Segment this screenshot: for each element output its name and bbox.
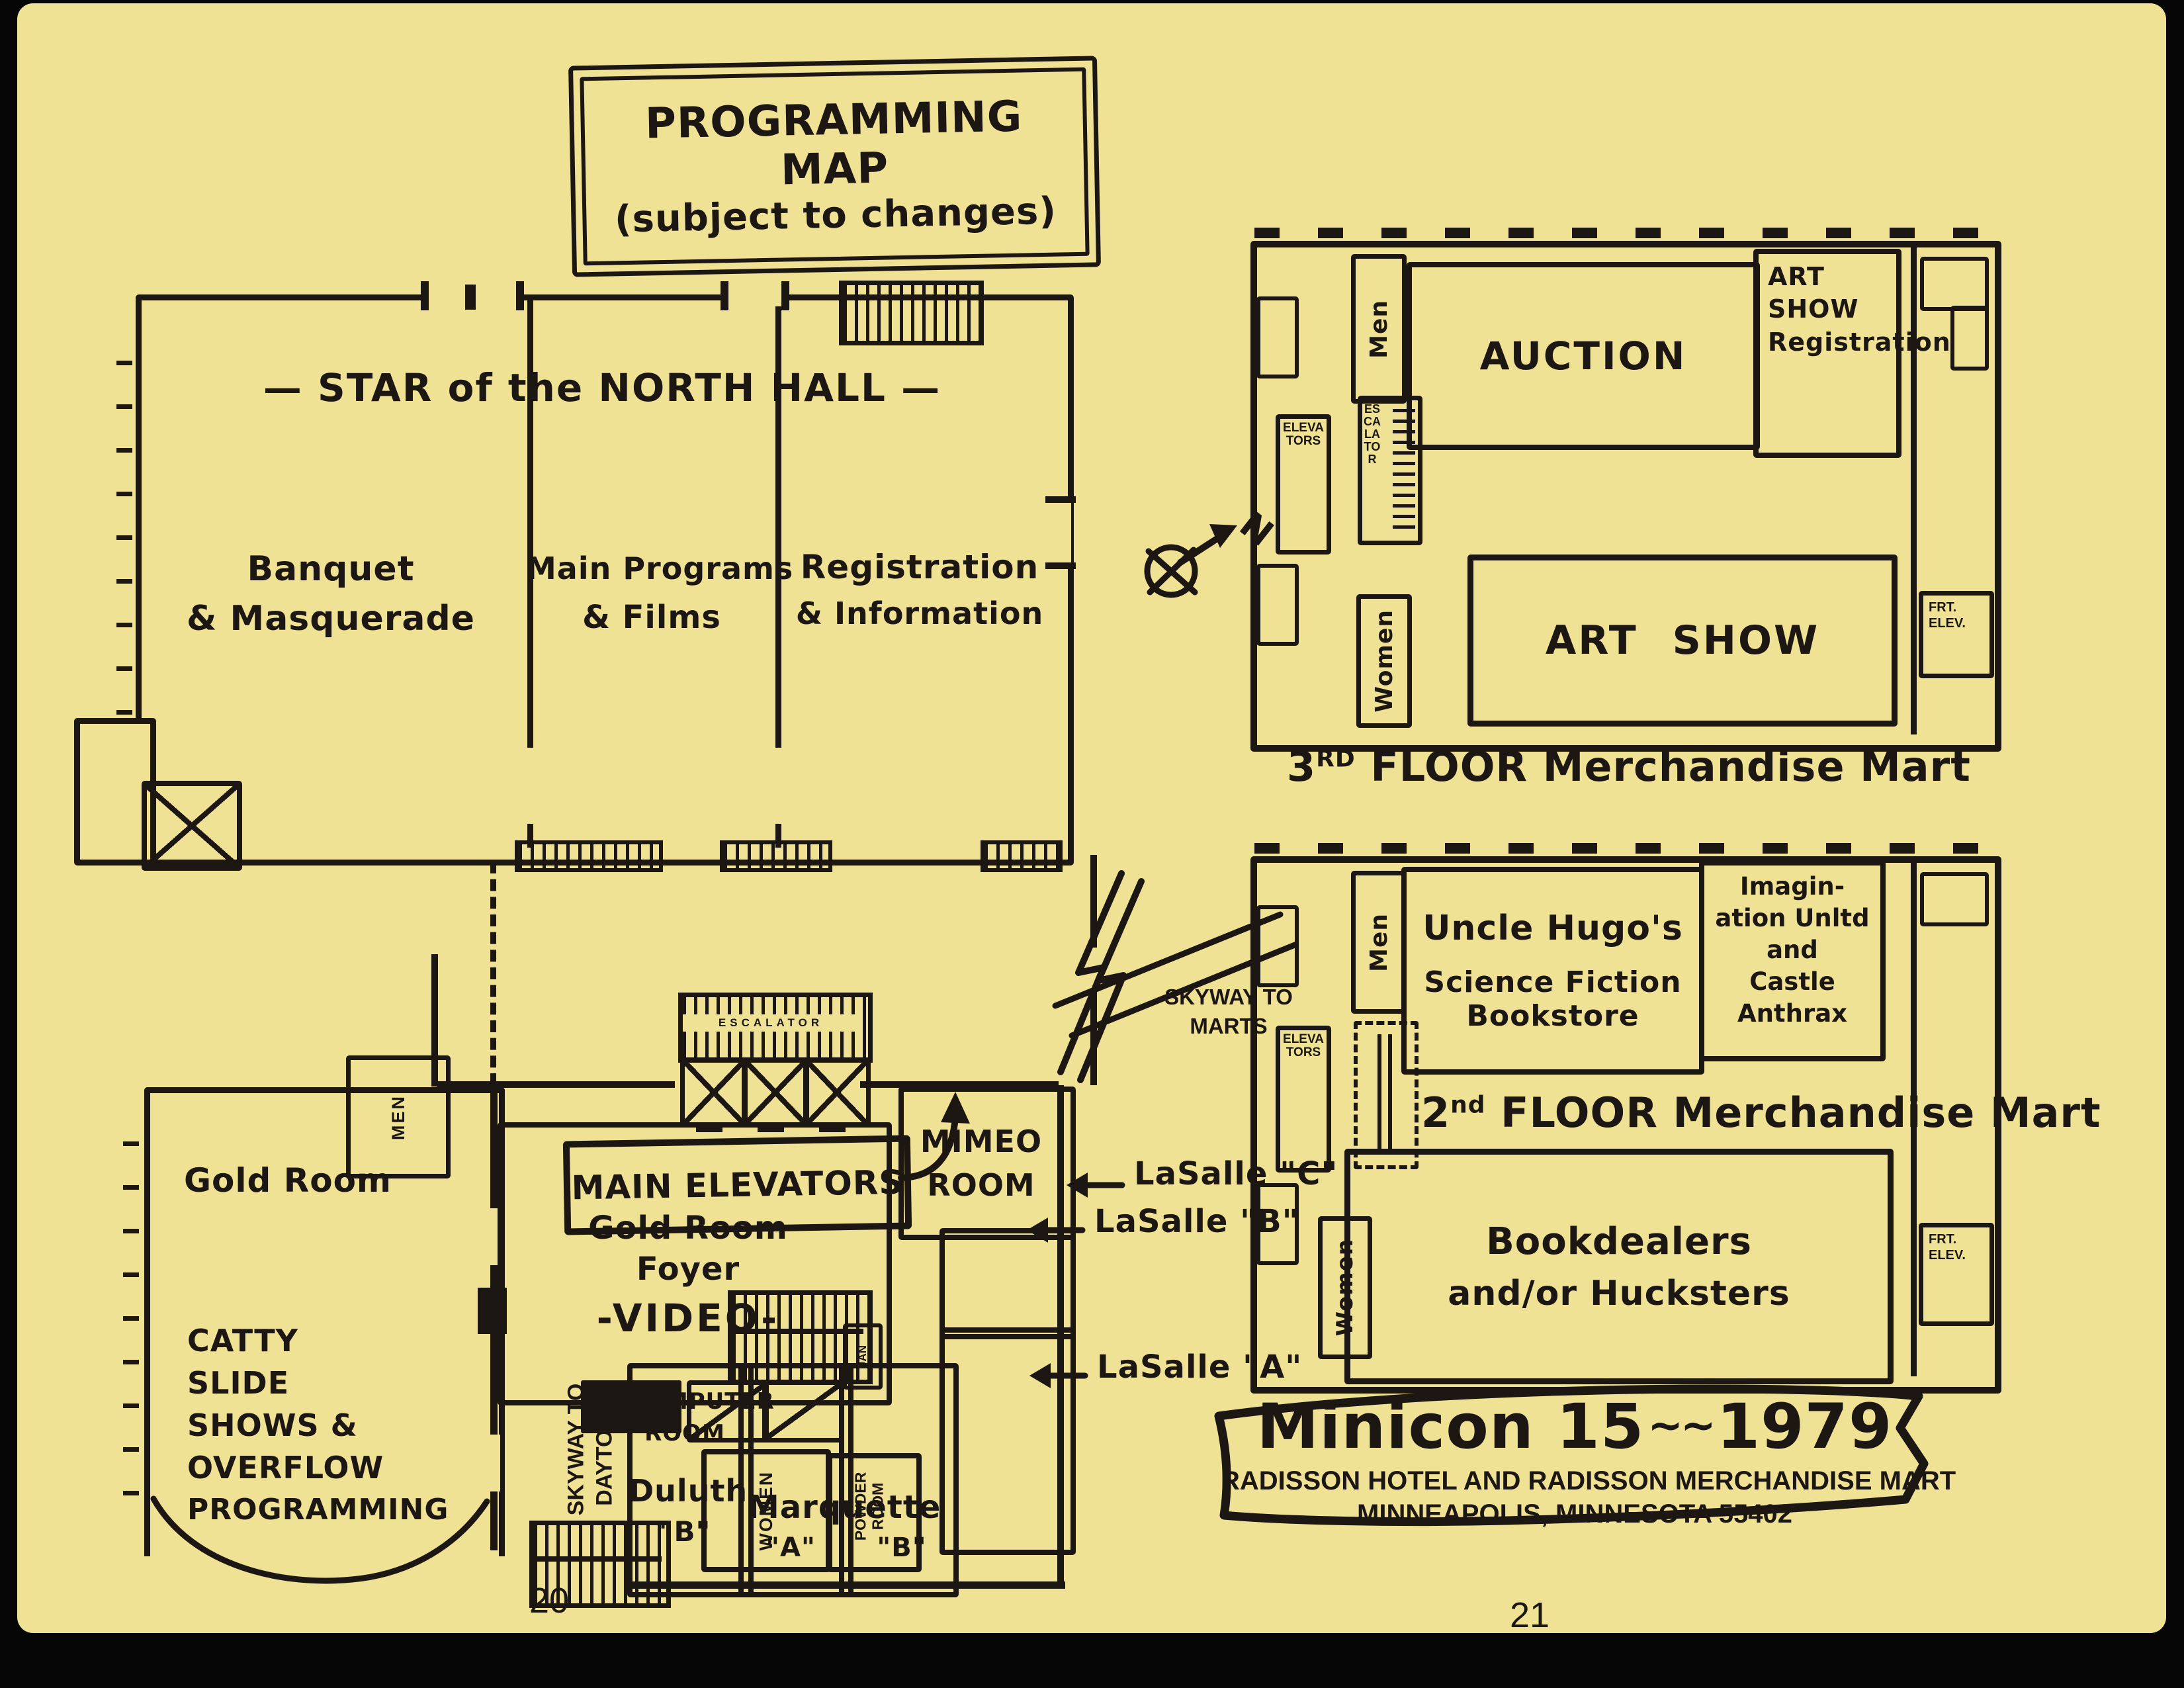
door-jamb xyxy=(516,281,524,310)
hugo-label-line2: Science Fiction xyxy=(1424,965,1681,999)
imag-label-line2: ation Unltd xyxy=(1704,903,1880,934)
catty-label-line2: SLIDE xyxy=(187,1362,449,1405)
imag-label-line3: and xyxy=(1704,934,1880,966)
marquette-b-label: "B" xyxy=(872,1533,932,1563)
balcony-rail xyxy=(981,840,1063,872)
registration-label-line2: & Information xyxy=(781,596,1059,631)
elevator-car xyxy=(803,1057,871,1128)
floor3-womens-label: Women xyxy=(1371,609,1398,713)
freight-elevator-box xyxy=(142,781,242,871)
skyway-daytons-label: SKYWAY TO DAYTON'S xyxy=(562,1370,619,1529)
balcony-rail xyxy=(720,840,832,872)
catty-label-line1: CATTY xyxy=(187,1320,449,1362)
floor3-right-wall xyxy=(1911,247,1917,734)
gold-room-label: Gold Room xyxy=(184,1161,392,1200)
corridor-dashed-wall xyxy=(490,862,496,1085)
stairwell xyxy=(839,281,984,345)
floor2-small-room xyxy=(1920,872,1989,926)
lasalle-a-label: LaSalle "A" xyxy=(1097,1349,1302,1386)
escalator-block-label: ESCALATOR xyxy=(683,1014,859,1032)
main-programs-label-line2: & Films xyxy=(526,599,777,636)
auction-label: AUCTION xyxy=(1480,333,1687,378)
door-jamb xyxy=(721,281,728,310)
floor2-caption: 2nd FLOOR Merchandise Mart xyxy=(1421,1088,2089,1137)
floor2-elevators-label: ELEVATORS xyxy=(1280,1033,1327,1059)
floor3-left-alcove xyxy=(1256,296,1299,378)
imagination-castle-room: Imagin- ation Unltd and Castle Anthrax xyxy=(1699,860,1886,1061)
door-gap xyxy=(724,289,784,306)
floor2-escalator xyxy=(1354,1021,1419,1169)
bookdealers-label-line2: and/or Hucksters xyxy=(1448,1274,1790,1313)
break-bolt-icon xyxy=(1080,881,1141,1080)
imag-label-line4: Castle xyxy=(1704,966,1880,998)
floor3-small-room xyxy=(1950,306,1989,371)
north-hall-window-ticks xyxy=(116,357,132,715)
artreg-label-line3: Registration xyxy=(1768,326,1951,359)
door-gap xyxy=(768,748,789,824)
foyer-label-line1: Gold Room xyxy=(529,1210,847,1247)
mimeo-label-line1: MIMEO xyxy=(900,1124,1063,1159)
floor2-right-wall xyxy=(1911,863,1917,1376)
door-gap xyxy=(488,1435,500,1491)
catty-label-line3: SHOWS & xyxy=(187,1405,449,1447)
lasalle-b-label: LaSalle "B" xyxy=(1094,1203,1299,1240)
floor3-frt-label-line2: ELEV. xyxy=(1929,615,1966,631)
floor2-frt-label-line1: FRT. xyxy=(1929,1231,1966,1247)
page-number-left: 20 xyxy=(529,1580,569,1621)
lasalle-a-arrow-icon xyxy=(1027,1360,1090,1391)
door-jamb xyxy=(421,281,429,310)
banquet-room-label-line2: & Masquerade xyxy=(142,599,519,639)
art-show-label: ART SHOW xyxy=(1546,617,1819,664)
catty-label-line4: OVERFLOW xyxy=(187,1447,449,1489)
banner-title-line: Minicon 15 ~~ 1979 xyxy=(1227,1391,1922,1463)
lasalle-c-arrow-icon xyxy=(1064,1170,1127,1200)
banner-squiggle: ~~ xyxy=(1647,1401,1713,1450)
floor2-womens-label: Women xyxy=(1332,1239,1358,1336)
door-gap xyxy=(520,748,541,824)
imag-label-line5: Anthrax xyxy=(1704,998,1880,1030)
floor2-womens-room: Women xyxy=(1318,1216,1372,1359)
floor2-freight-elevator: FRT. ELEV. xyxy=(1919,1223,1994,1326)
main-programs-label-line1: Main Programs xyxy=(526,551,777,586)
balcony-rail xyxy=(515,840,663,872)
duluth-label: Duluth xyxy=(629,1473,741,1509)
art-show-room: ART SHOW xyxy=(1467,555,1898,727)
floor3-escalator-label: ESCALATOR xyxy=(1364,403,1381,465)
door-post xyxy=(465,285,476,310)
video-label: -VIDEO- xyxy=(529,1296,847,1341)
marquette-label: Marquette xyxy=(748,1489,939,1526)
floor3-elevator-shaft: ELEVATORS xyxy=(1276,414,1331,555)
banner-title: Minicon 15 xyxy=(1257,1391,1645,1463)
title-box-inner-border: PROGRAMMING MAP (subject to changes) xyxy=(580,67,1089,266)
escalator-belt-line xyxy=(1388,1034,1392,1155)
floor2-caption-ordinal: nd xyxy=(1450,1091,1485,1118)
north-hall-heading: — STAR of the NORTH HALL — xyxy=(172,365,1032,410)
floor2-frt-label-line2: ELEV. xyxy=(1929,1247,1966,1263)
bookdealers-room: Bookdealers and/or Hucksters xyxy=(1344,1149,1894,1384)
title-box: PROGRAMMING MAP (subject to changes) xyxy=(568,56,1101,277)
floor3-womens-room: Women xyxy=(1356,594,1412,728)
floor3-caption-number: 3 xyxy=(1287,742,1316,791)
escalator-belt-line xyxy=(1377,1034,1381,1155)
computer-room-label-line1: COMPUTER xyxy=(629,1388,741,1415)
floor3-mens-room: Men xyxy=(1351,254,1407,404)
computer-room-label-line2: ROOM xyxy=(629,1420,741,1446)
door-jamb xyxy=(781,281,789,310)
elevator-car xyxy=(680,1057,748,1128)
bookdealers-label-line1: Bookdealers xyxy=(1486,1220,1752,1263)
art-show-registration-room: ART SHOW Registration xyxy=(1753,249,1901,458)
uncle-hugos-room: Uncle Hugo's Science Fiction Bookstore xyxy=(1401,867,1704,1075)
floor2-edge-ticks xyxy=(1254,843,1986,854)
floor3-mens-label: Men xyxy=(1366,300,1393,359)
map-title-line2: MAP xyxy=(780,144,889,195)
auction-room: AUCTION xyxy=(1407,262,1760,450)
break-bolt-icon xyxy=(1061,873,1121,1072)
floor3-small-room xyxy=(1920,257,1989,311)
map-title-line1: PROGRAMMING xyxy=(644,93,1023,149)
floor3-freight-elevator: FRT. ELEV. xyxy=(1919,591,1994,678)
imag-label-line1: Imagin- xyxy=(1704,871,1880,903)
floor2-mens-label: Men xyxy=(1366,913,1393,972)
mimeo-label-line2: ROOM xyxy=(900,1167,1063,1203)
floor3-escalator: ESCALATOR xyxy=(1358,396,1422,545)
foyer-label-line2: Foyer xyxy=(529,1251,847,1288)
door-jamb xyxy=(1045,496,1076,503)
catty-label-line5: PROGRAMMING xyxy=(187,1489,449,1530)
banner-city-line: MINNEAPOLIS, MINNESOTA 55402 xyxy=(1221,1499,1929,1529)
page-number-right: 21 xyxy=(1510,1595,1550,1636)
lasalle-b-arrow-icon xyxy=(1024,1215,1087,1245)
floor3-frt-label-line1: FRT. xyxy=(1929,600,1966,615)
skyway-daytons-line1: SKYWAY TO xyxy=(562,1370,591,1529)
map-title-line3: (subject to changes) xyxy=(614,190,1057,242)
floor3-edge-ticks xyxy=(1254,228,1986,238)
floor2-left-alcove xyxy=(1256,905,1299,987)
marquette-a-label: "A" xyxy=(761,1533,820,1563)
scanned-program-page: { "title_box": { "line1": "PROGRAMMING",… xyxy=(0,0,2184,1688)
banner-hotel-line: RADISSON HOTEL AND RADISSON MERCHANDISE … xyxy=(1221,1466,1929,1496)
floor2-caption-number: 2 xyxy=(1421,1088,1450,1137)
hugo-label-line3: Bookstore xyxy=(1466,999,1639,1033)
elevator-car xyxy=(742,1057,809,1128)
floor3-caption-text: FLOOR Merchandise Mart xyxy=(1356,742,1971,791)
floor3-caption: 3RD FLOOR Merchandise Mart xyxy=(1287,742,1955,791)
floor2-mens-room: Men xyxy=(1351,871,1407,1014)
registration-label-line1: Registration xyxy=(781,548,1059,586)
duluth-b-label: "B" xyxy=(629,1515,741,1548)
floor3-elevators-label: ELEVATORS xyxy=(1280,422,1327,448)
lasalle-c-label: LaSalle "C" xyxy=(1134,1155,1338,1192)
hugo-label-line1: Uncle Hugo's xyxy=(1422,909,1683,948)
floor2-elevator-shaft: ELEVATORS xyxy=(1276,1026,1331,1173)
floor3-caption-ordinal: RD xyxy=(1316,745,1356,772)
compass-icon: N xyxy=(1133,495,1272,617)
escalator-steps xyxy=(1393,403,1415,529)
banquet-room-label-line1: Banquet xyxy=(142,549,519,589)
floor2-caption-text: FLOOR Merchandise Mart xyxy=(1486,1088,2101,1137)
gold-room-window-ticks xyxy=(123,1125,139,1495)
banner-year: 1979 xyxy=(1717,1391,1893,1463)
skyway-daytons-line2: DAYTON'S xyxy=(590,1370,619,1529)
catty-overflow-label: CATTY SLIDE SHOWS & OVERFLOW PROGRAMMING xyxy=(187,1320,449,1530)
